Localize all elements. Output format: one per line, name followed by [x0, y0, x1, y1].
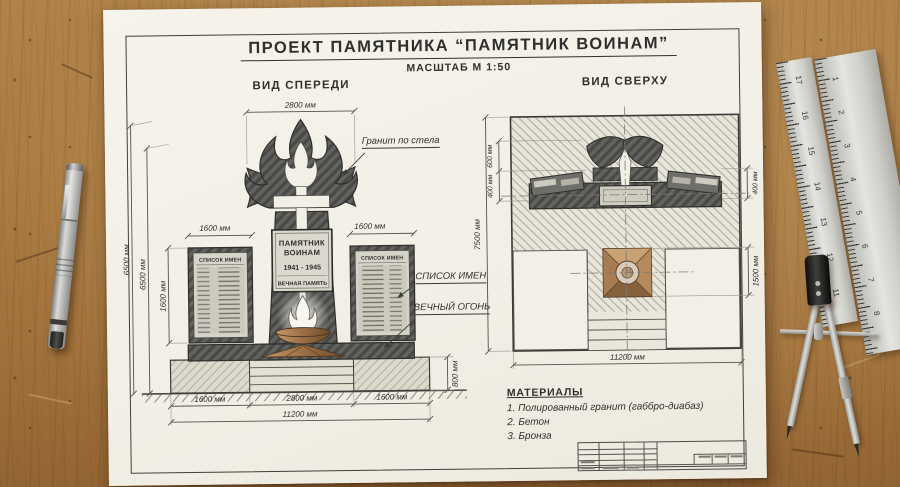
dim-11200-top-view: 11200 мм [610, 352, 645, 361]
dim-400-left: 400 мм [487, 174, 494, 198]
ruler-number: 13 [819, 217, 829, 227]
material-item-1: 1. Полированный гранит (габбро-диабаз) [507, 400, 704, 416]
sheet-title: ПРОЕКТ ПАМЯТНИКА “ПАМЯТНИК ВОИНАМ” [240, 34, 677, 61]
callout-eternal-flame: ВЕЧНЫЙ ОГОНЬ [414, 301, 491, 315]
drafting-compass [778, 255, 900, 470]
names-rows-left [196, 267, 245, 334]
pen-clip [62, 185, 69, 219]
materials-list: МАТЕРИАЛЫ 1. Полированный гранит (габбро… [507, 385, 704, 444]
technical-pen [47, 163, 83, 350]
ruler-number: 6 [860, 243, 870, 249]
dim-400-right: 400 мм [752, 171, 759, 195]
names-rows-right [358, 265, 407, 332]
callout-names: СПИСОК ИМЕН [415, 270, 486, 284]
sheet-header: ПРОЕКТ ПАМЯТНИКА “ПАМЯТНИК ВОИНАМ” МАСШТ… [208, 34, 708, 77]
plaque-line1: ПАМЯТНИК [279, 238, 325, 248]
ruler-number: 14 [812, 181, 822, 191]
dim-b-2800: 2800 мм [285, 393, 318, 402]
ruler-number: 3 [842, 143, 852, 149]
wood-scratch [61, 63, 93, 78]
dim-2800-top: 2800 мм [284, 100, 317, 109]
ruler-number: 5 [854, 210, 864, 216]
compass-handle [804, 254, 831, 306]
compass-leg-right [822, 296, 860, 444]
compass-nut [814, 323, 823, 340]
pen-tip [49, 331, 64, 349]
ruler-number: 2 [836, 109, 846, 115]
ruler-number: 17 [794, 75, 804, 85]
plaque-line2: ВОИНАМ [284, 248, 320, 257]
ruler-number: 16 [800, 110, 810, 120]
blueprint-sheet: ПРОЕКТ ПАМЯТНИКА “ПАМЯТНИК ВОИНАМ” МАСШТ… [103, 2, 767, 486]
pen-cap [61, 163, 84, 222]
dim-b-1600-l: 1600 мм [194, 395, 226, 404]
wood-scratch [28, 393, 71, 404]
callout-granite: Гранит по стела [362, 135, 440, 149]
plaque-line3: ВЕЧНАЯ ПАМЯТЬ [278, 281, 328, 288]
dim-1500: 1500 мм [751, 255, 760, 287]
dim-b-1600-r: 1600 мм [376, 392, 408, 401]
panel-header-right: СПИСОК ИМЕН [361, 255, 404, 262]
desk-scene: ПРОЕКТ ПАМЯТНИКА “ПАМЯТНИК ВОИНАМ” МАСШТ… [0, 0, 900, 487]
ruler-number: 15 [806, 146, 816, 156]
top-view-drawing: 7500 мм 600 мм 400 мм 400 мм 1500 мм 112… [468, 100, 771, 384]
dim-600: 600 мм [487, 144, 494, 168]
dim-1600-panel-h: 1600 мм [158, 280, 167, 312]
ruler-number: 4 [848, 176, 858, 182]
top-view-heading: ВИД СВЕРХУ [575, 75, 675, 88]
ruler-number: 1 [830, 76, 840, 82]
dim-11200: 11200 мм [283, 409, 318, 418]
dim-6500-inner: 6500 мм [138, 259, 147, 291]
compass-leg-left [787, 296, 821, 427]
title-block-stamp [577, 440, 746, 471]
base-platform [170, 357, 429, 393]
dim-1600-left: 1600 мм [199, 223, 231, 232]
dim-6500-outer: 6500 мм [122, 244, 131, 276]
names-panel-left: СПИСОК ИМЕН [188, 247, 253, 343]
memorial-plaque: ПАМЯТНИК ВОИНАМ 1941 - 1945 ВЕЧНАЯ ПАМЯТ… [272, 229, 333, 292]
materials-heading: МАТЕРИАЛЫ [507, 385, 704, 399]
panel-header-left: СПИСОК ИМЕН [199, 257, 242, 264]
dim-7500: 7500 мм [473, 218, 482, 250]
plaque-years: 1941 - 1945 [284, 264, 322, 271]
dim-800: 800 мм [450, 360, 459, 387]
names-panel-right: СПИСОК ИМЕН [350, 245, 415, 341]
dim-1600-right: 1600 мм [354, 222, 386, 231]
